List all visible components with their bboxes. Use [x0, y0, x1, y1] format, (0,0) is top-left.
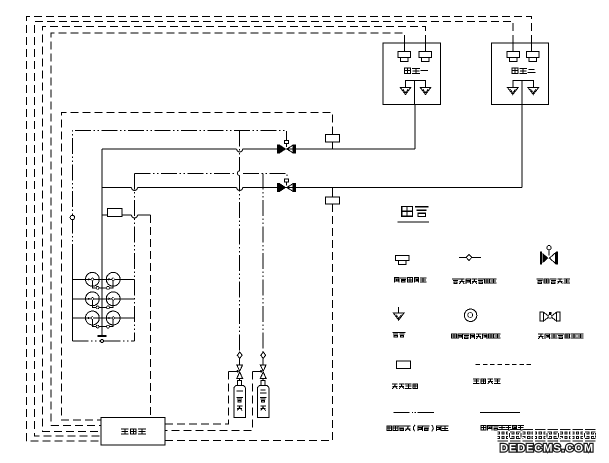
svg-text:DEDECMS.COM: DEDECMS.COM: [500, 443, 594, 455]
